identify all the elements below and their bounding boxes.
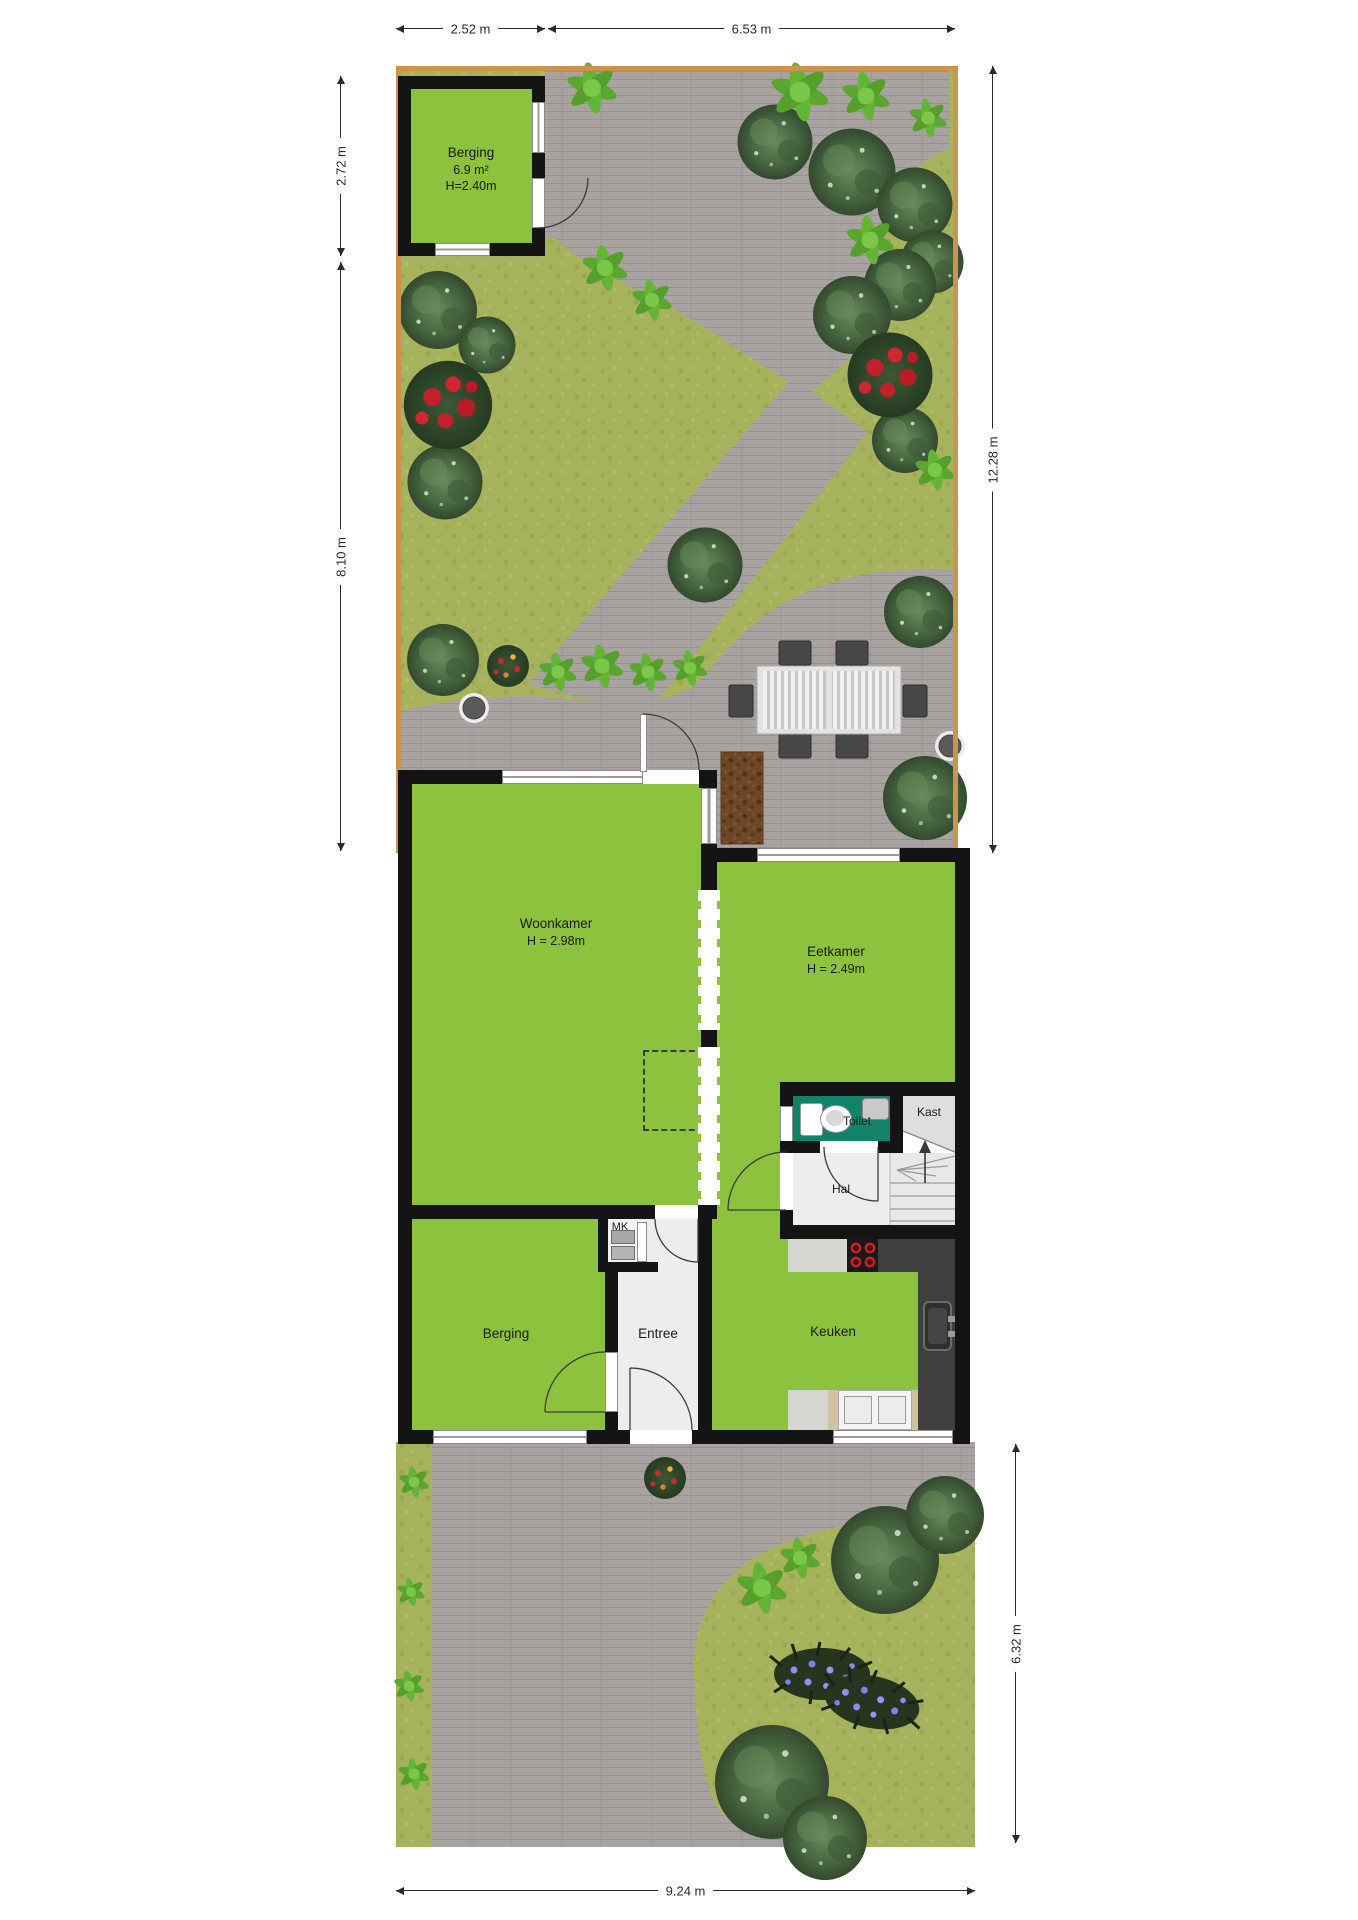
wall	[532, 228, 545, 256]
toilet-bowl-inner	[826, 1110, 844, 1126]
house	[0, 0, 1358, 1920]
window	[833, 1430, 953, 1444]
meter-box	[611, 1230, 635, 1244]
kitchen-sink-basin	[928, 1308, 947, 1344]
wall	[605, 1272, 618, 1352]
door-leaf	[640, 714, 647, 772]
door-leaf	[532, 178, 545, 228]
corridor-floor	[712, 1082, 780, 1239]
wall	[398, 76, 411, 256]
wall	[398, 770, 412, 1444]
wall	[955, 848, 970, 1444]
wall	[605, 1412, 618, 1430]
window	[433, 1430, 587, 1444]
window	[435, 243, 490, 256]
door-opening	[643, 770, 699, 784]
berging-floor	[412, 1219, 605, 1430]
door-leaf	[637, 1222, 647, 1262]
window	[701, 788, 717, 844]
toilet-sink	[862, 1098, 889, 1120]
stairs-floor	[890, 1153, 955, 1225]
wall	[532, 76, 545, 102]
floorplan-canvas: Berging 6.9 m² H=2.40m Woonkamer H = 2.9…	[0, 0, 1358, 1920]
woonkamer-floor	[412, 784, 701, 1205]
kitchen-counter	[788, 1390, 828, 1430]
shed-floor	[411, 89, 532, 243]
window	[757, 848, 900, 862]
wall	[692, 1430, 833, 1444]
door-leaf	[605, 1352, 618, 1412]
wall	[698, 1205, 717, 1219]
hal-floor	[793, 1153, 890, 1225]
wall	[698, 1219, 712, 1430]
wall	[953, 1430, 970, 1444]
wall	[398, 770, 502, 784]
kitchen-counter-dark	[878, 1239, 955, 1272]
meter-box	[611, 1246, 635, 1260]
window	[502, 770, 643, 784]
wall	[701, 1030, 717, 1047]
sink-basin	[844, 1396, 872, 1424]
wall	[598, 1262, 658, 1272]
eetkamer-floor	[717, 862, 955, 1082]
wall	[780, 1096, 793, 1106]
sink-basin	[878, 1396, 906, 1424]
wall	[699, 770, 717, 788]
counter-trim	[912, 1390, 918, 1430]
wall	[701, 848, 757, 862]
openplan-divider	[701, 890, 717, 1205]
door-opening	[655, 1205, 698, 1219]
kast-floor	[903, 1096, 955, 1153]
door-opening	[820, 1141, 878, 1153]
wall	[398, 243, 435, 256]
cooktop	[847, 1239, 878, 1272]
wall	[398, 1205, 655, 1219]
chimney-outline	[643, 1050, 704, 1131]
kitchen-counter-dark	[918, 1272, 955, 1430]
wall	[398, 76, 545, 89]
kitchen-counter	[788, 1239, 847, 1272]
window	[532, 102, 545, 153]
wall	[587, 1430, 630, 1444]
wall	[780, 1225, 955, 1239]
wall	[780, 1082, 955, 1096]
wall	[878, 1141, 903, 1153]
wall	[398, 1430, 433, 1444]
counter-trim	[828, 1390, 838, 1430]
wall	[701, 862, 717, 890]
wall	[780, 1141, 820, 1153]
front-door-opening	[630, 1430, 692, 1444]
wall	[532, 153, 545, 178]
